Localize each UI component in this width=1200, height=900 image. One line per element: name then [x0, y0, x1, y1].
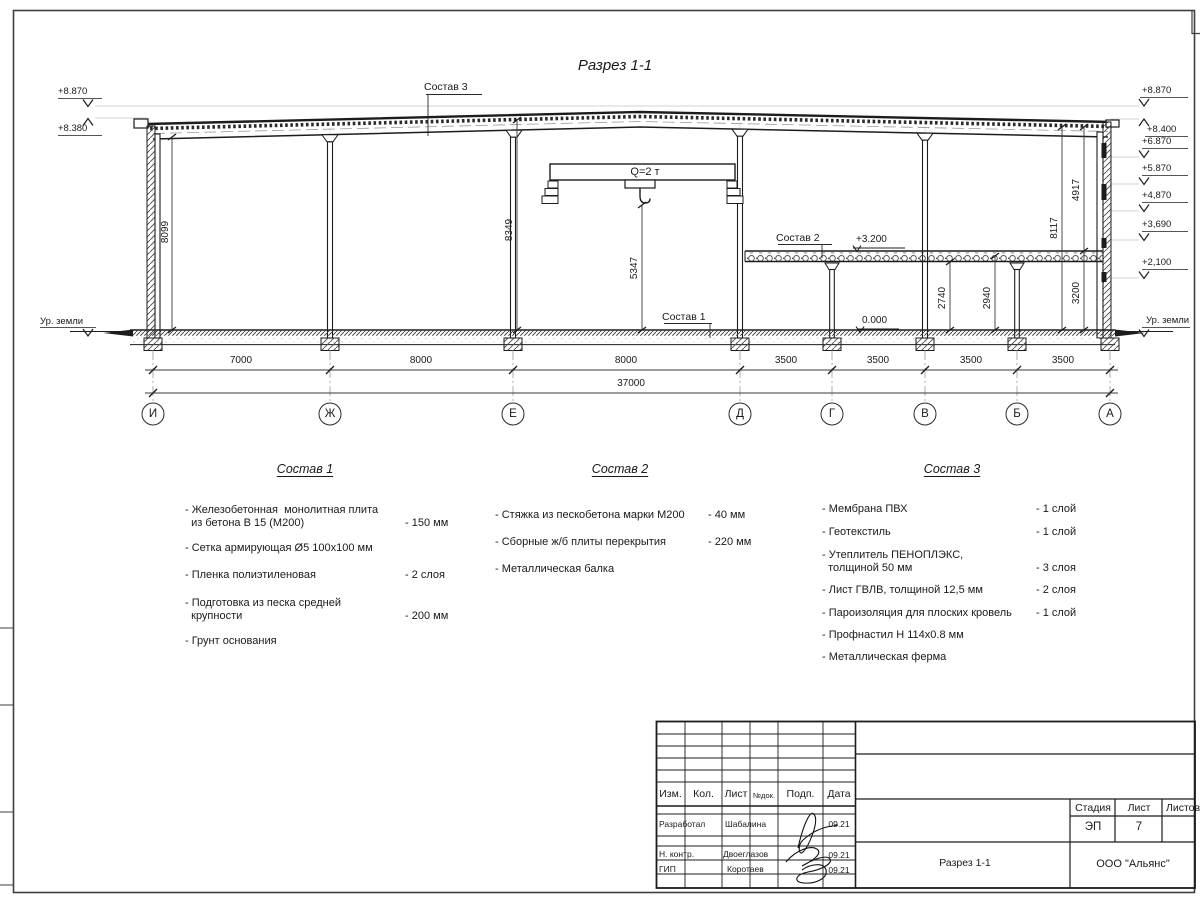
material-item: - Металлическая балка: [495, 563, 700, 576]
tb-header-data: Дата: [823, 788, 855, 800]
elevation-extension-lines: [95, 106, 1139, 278]
tb-date-1: 09.21: [823, 819, 855, 829]
axis-bubbles: [142, 403, 1121, 425]
composition-1-title: Состав 1: [185, 462, 425, 476]
tb-header-kol: Кол.: [685, 788, 722, 800]
elevation-right-6870: +6.870: [1142, 136, 1171, 147]
material-value: - 1 слой: [1036, 503, 1106, 516]
tb-name-korotaev: Коротаев: [727, 864, 764, 874]
elevation-right-8870: +8.870: [1142, 85, 1171, 96]
drawing-title: Разрез 1-1: [520, 57, 710, 74]
dim-2940: 2940: [982, 276, 994, 320]
elevation-right-8400: +8.400: [1147, 124, 1176, 135]
callout-sostav-1: Состав 1: [662, 311, 722, 323]
crane-hook: [640, 188, 650, 203]
dim-span-8000b: 8000: [601, 355, 651, 366]
material-item: - Сетка армирующая Ø5 100x100 мм: [185, 542, 397, 555]
material-item: - Пленка полиэтиленовая: [185, 569, 397, 582]
dim-3200: 3200: [1071, 271, 1083, 315]
tb-sheets-label: Листов: [1163, 802, 1200, 814]
material-item: - Подготовка из песка средней крупности: [185, 597, 397, 623]
corner-stamp-box: [1192, 11, 1200, 34]
material-value: - 1 слой: [1036, 607, 1106, 620]
section-linework: [0, 0, 1200, 900]
material-item: - Железобетонная монолитная плита из бет…: [185, 504, 397, 530]
callout-sostav-2: Состав 2: [776, 232, 836, 244]
axis-bubble-i: И: [142, 403, 164, 425]
tb-sheet-label: Лист: [1116, 802, 1162, 814]
material-item: - Утеплитель ПЕНОПЛЭКС, толщиной 50 мм: [822, 549, 1028, 575]
tb-company: ООО "Альянс": [1071, 858, 1195, 870]
axis-bubble-e: Е: [502, 403, 524, 425]
material-item: - Пароизоляция для плоских кровель: [822, 607, 1028, 620]
axis-bubble-zh: Ж: [319, 403, 341, 425]
callout-sostav-3: Состав 3: [424, 81, 484, 93]
material-value: - 3 слоя: [1036, 562, 1106, 575]
roof-truss: [134, 112, 1119, 139]
elevation-right-3690: +3,690: [1142, 219, 1171, 230]
material-value: - 220 мм: [708, 536, 778, 549]
dim-span-3500b: 3500: [853, 355, 903, 366]
elevation-plus3200: +3.200: [856, 234, 887, 245]
sheet-frame: [0, 11, 1200, 893]
axis-bubble-d: Д: [729, 403, 751, 425]
material-value: - 40 мм: [708, 509, 778, 522]
dim-2740: 2740: [937, 276, 949, 320]
mezzanine-column: [1010, 263, 1024, 270]
columns: [322, 129, 1024, 338]
material-item: - Металлическая ферма: [822, 651, 1028, 664]
dim-span-8000a: 8000: [396, 355, 446, 366]
ground-level-label-right: Ур. земли: [1146, 315, 1189, 326]
dim-8117: 8117: [1049, 206, 1061, 250]
tb-date-2: 09.21: [823, 850, 855, 860]
dim-span-3500a: 3500: [761, 355, 811, 366]
material-item: - Сборные ж/б плиты перекрытия: [495, 536, 700, 549]
material-value: - 150 мм: [405, 517, 475, 530]
elevation-right-5870: +5.870: [1142, 163, 1171, 174]
tb-header-podp: Подп.: [778, 788, 823, 800]
tb-stage-label: Стадия: [1071, 802, 1115, 814]
tb-stage-value: ЭП: [1071, 821, 1115, 833]
tb-role-nkontr: Н. контр.: [659, 849, 694, 859]
tb-sheet-value: 7: [1116, 821, 1162, 833]
crane-trolley: [625, 180, 655, 188]
tb-role-gip: ГИП: [659, 864, 676, 874]
material-item: - Лист ГВЛВ, толщиной 12,5 мм: [822, 584, 1028, 597]
composition-2-title: Состав 2: [495, 462, 745, 476]
material-item: - Грунт основания: [185, 635, 397, 648]
tb-role-razrabotal: Разработал: [659, 819, 705, 829]
axis-grid-lines: [153, 122, 1110, 330]
dim-8349: 8349: [504, 208, 516, 252]
mezzanine-column: [825, 263, 839, 270]
material-item: - Мембрана ПВХ: [822, 503, 1028, 516]
material-item: - Геотекстиль: [822, 526, 1028, 539]
left-parapet: [134, 119, 148, 128]
elevation-left-8380: +8.380: [58, 123, 87, 134]
axis-bubble-g: Г: [821, 403, 843, 425]
material-value: - 200 мм: [405, 610, 475, 623]
drawing-sheet: Разрез 1-1 Q=2 т Состав 3 Состав 2 Соста…: [0, 0, 1200, 900]
dim-5347: 5347: [629, 246, 641, 290]
tb-name-shabalina: Шабалина: [725, 819, 766, 829]
dim-span-7000: 7000: [216, 355, 266, 366]
dim-8099: 8099: [160, 210, 172, 254]
elevation-right-4870: +4,870: [1142, 190, 1171, 201]
crane-capacity-label: Q=2 т: [598, 166, 692, 178]
left-wall: [147, 126, 155, 338]
elevation-zero: 0.000: [862, 315, 887, 326]
material-value: - 2 слоя: [405, 569, 475, 582]
elevation-left-8870: +8.870: [58, 86, 87, 97]
material-value: - 2 слоя: [1036, 584, 1106, 597]
elevation-right-2100: +2,100: [1142, 257, 1171, 268]
tb-name-dvoeglazov: Двоеглазов: [723, 849, 768, 859]
ground-slab: [70, 330, 1173, 351]
material-value: - 1 слой: [1036, 526, 1106, 539]
walls: [147, 122, 1111, 338]
composition-3-title: Состав 3: [822, 462, 1082, 476]
axis-bubble-v: В: [914, 403, 936, 425]
material-item: - Стяжка из пескобетона марки М200: [495, 509, 700, 522]
axis-bubble-b: Б: [1006, 403, 1028, 425]
tb-header-izm: Изм.: [656, 788, 685, 800]
tb-date-3: 09.21: [823, 865, 855, 875]
tb-header-list: Лист: [722, 788, 750, 800]
material-item: - Профнастил Н 114x0.8 мм: [822, 629, 1028, 642]
tb-doc-name: Разрез 1-1: [880, 857, 1050, 869]
dim-span-3500c: 3500: [946, 355, 996, 366]
ground-level-label-left: Ур. земли: [40, 316, 83, 327]
tb-header-nodoc: №док.: [750, 791, 778, 800]
axis-bubble-a: А: [1099, 403, 1121, 425]
dim-total-37000: 37000: [606, 378, 656, 389]
dim-span-3500d: 3500: [1038, 355, 1088, 366]
dim-4917: 4917: [1071, 168, 1083, 212]
